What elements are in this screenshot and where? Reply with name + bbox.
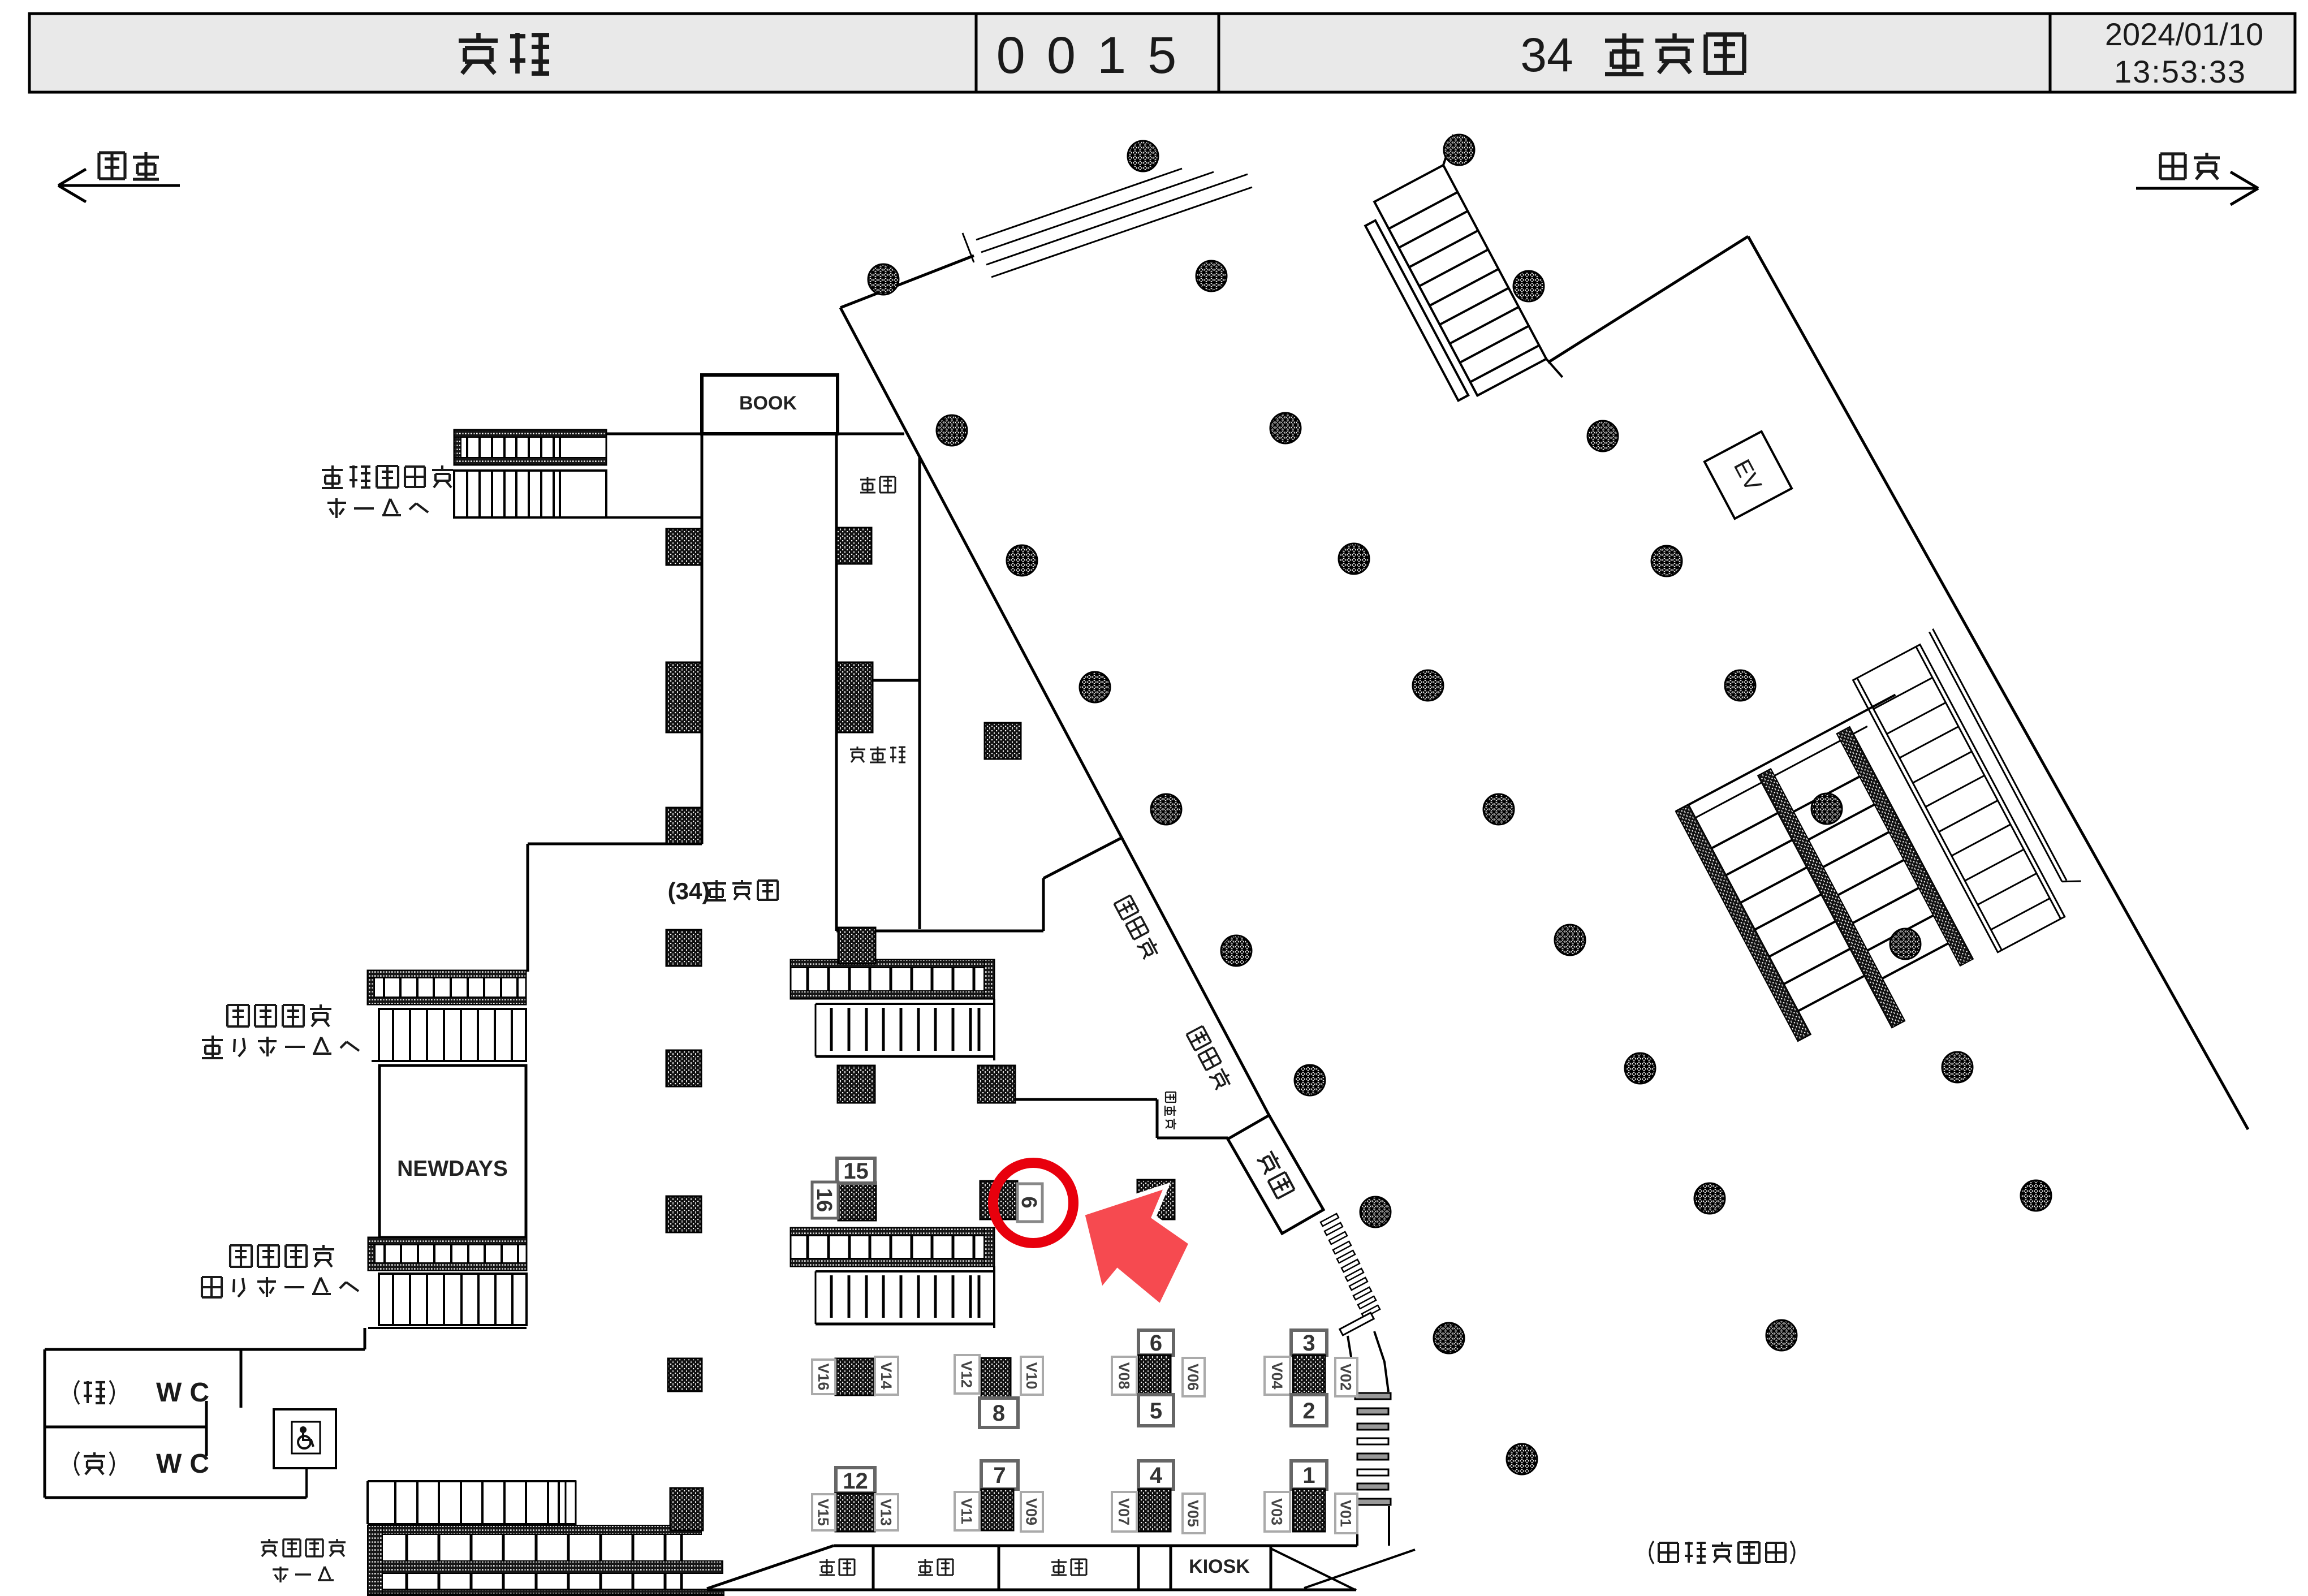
svg-text:V03: V03 <box>1269 1498 1285 1525</box>
svg-text:WC: WC <box>156 1449 217 1479</box>
svg-text:(34): (34) <box>668 878 710 904</box>
svg-text:V16: V16 <box>815 1363 832 1390</box>
svg-text:3: 3 <box>1302 1331 1315 1356</box>
svg-text:2024/01/10: 2024/01/10 <box>2105 16 2263 52</box>
svg-text:2: 2 <box>1302 1399 1315 1424</box>
svg-text:15: 15 <box>843 1159 869 1184</box>
svg-text:13:53:33: 13:53:33 <box>2114 54 2246 89</box>
svg-text:7: 7 <box>993 1463 1006 1488</box>
svg-text:12: 12 <box>843 1469 868 1494</box>
svg-text:V15: V15 <box>815 1499 832 1526</box>
svg-text:V11: V11 <box>958 1498 975 1525</box>
svg-text:34: 34 <box>1520 28 1573 81</box>
svg-text:V14: V14 <box>878 1362 895 1389</box>
svg-text:V01: V01 <box>1338 1500 1354 1527</box>
svg-text:KIOSK: KIOSK <box>1189 1556 1250 1577</box>
svg-text:8: 8 <box>993 1401 1005 1426</box>
svg-text:5: 5 <box>1150 1399 1162 1424</box>
svg-text:6: 6 <box>1017 1196 1041 1208</box>
svg-text:0015: 0015 <box>996 27 1198 84</box>
svg-text:V05: V05 <box>1185 1500 1202 1527</box>
svg-text:V09: V09 <box>1023 1498 1040 1525</box>
svg-text:V06: V06 <box>1185 1364 1202 1391</box>
svg-text:V10: V10 <box>1023 1362 1040 1389</box>
svg-text:V02: V02 <box>1338 1364 1354 1391</box>
svg-text:16: 16 <box>812 1188 836 1212</box>
svg-text:1: 1 <box>1302 1463 1315 1488</box>
svg-text:WC: WC <box>156 1378 217 1408</box>
svg-text:V04: V04 <box>1269 1362 1285 1389</box>
svg-text:NEWDAYS: NEWDAYS <box>397 1157 508 1181</box>
svg-text:V08: V08 <box>1116 1362 1133 1389</box>
svg-text:4: 4 <box>1150 1463 1163 1488</box>
svg-text:V13: V13 <box>878 1499 895 1526</box>
svg-text:BOOK: BOOK <box>739 392 797 414</box>
svg-text:V12: V12 <box>958 1361 975 1388</box>
svg-text:6: 6 <box>1150 1331 1162 1356</box>
svg-text:V07: V07 <box>1115 1498 1132 1525</box>
